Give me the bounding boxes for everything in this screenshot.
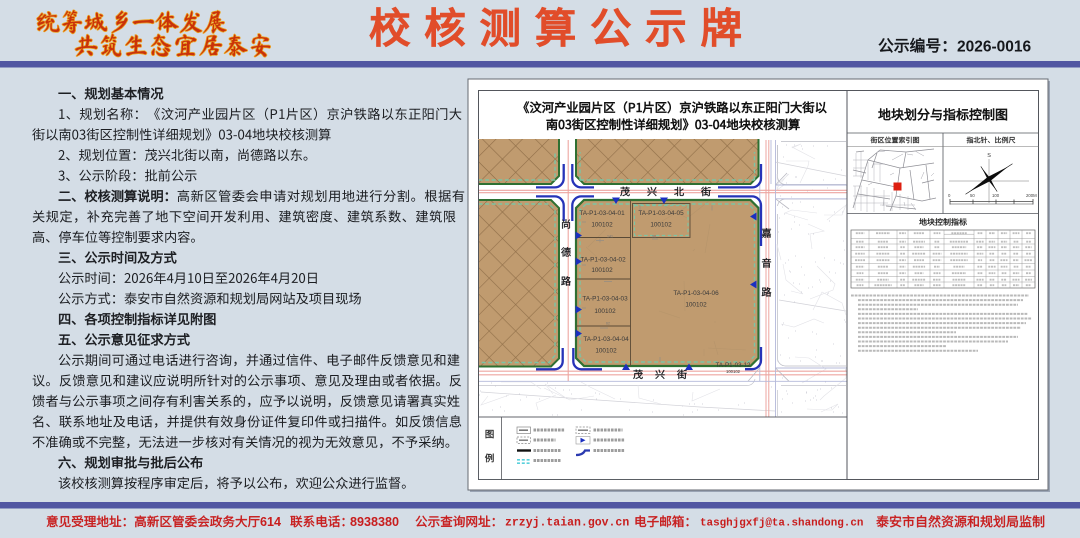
svg-text:62: 62	[606, 322, 610, 326]
svg-text:100102: 100102	[595, 348, 617, 355]
svg-text:8938380: 8938380	[350, 515, 399, 529]
svg-text:100102: 100102	[591, 267, 613, 274]
svg-text:100102: 100102	[685, 302, 707, 309]
svg-text:50: 50	[970, 193, 975, 198]
svg-text:100102: 100102	[594, 308, 616, 315]
svg-text:TA-P1-03-04-04: TA-P1-03-04-04	[583, 336, 629, 343]
svg-text:S: S	[987, 153, 991, 159]
svg-text:zrzyj.taian.gov.cn: zrzyj.taian.gov.cn	[505, 517, 629, 530]
svg-text:98: 98	[652, 235, 656, 239]
svg-text:TA-P1-03-04-06: TA-P1-03-04-06	[673, 290, 719, 297]
svg-text:TA-P1-03-04-05: TA-P1-03-04-05	[638, 210, 684, 217]
svg-text:TA-P1-03-04-01: TA-P1-03-04-01	[579, 210, 625, 217]
svg-text:200M: 200M	[1026, 193, 1037, 198]
svg-text:100102: 100102	[650, 222, 672, 229]
svg-text:2026-0016: 2026-0016	[957, 38, 1032, 55]
svg-text:100: 100	[992, 193, 1000, 198]
svg-text:141: 141	[607, 235, 613, 239]
svg-text:614: 614	[260, 515, 281, 529]
svg-text:100102: 100102	[591, 222, 613, 229]
svg-text:TA-P1-03-04-02: TA-P1-03-04-02	[580, 257, 626, 264]
svg-text:tasghjgxfj@ta.shandong.cn: tasghjgxfj@ta.shandong.cn	[700, 517, 863, 529]
svg-text:TA-P1-03-12: TA-P1-03-12	[716, 362, 752, 369]
svg-text:TA-P1-03-04-03: TA-P1-03-04-03	[582, 296, 628, 303]
svg-text:100102: 100102	[726, 369, 741, 374]
